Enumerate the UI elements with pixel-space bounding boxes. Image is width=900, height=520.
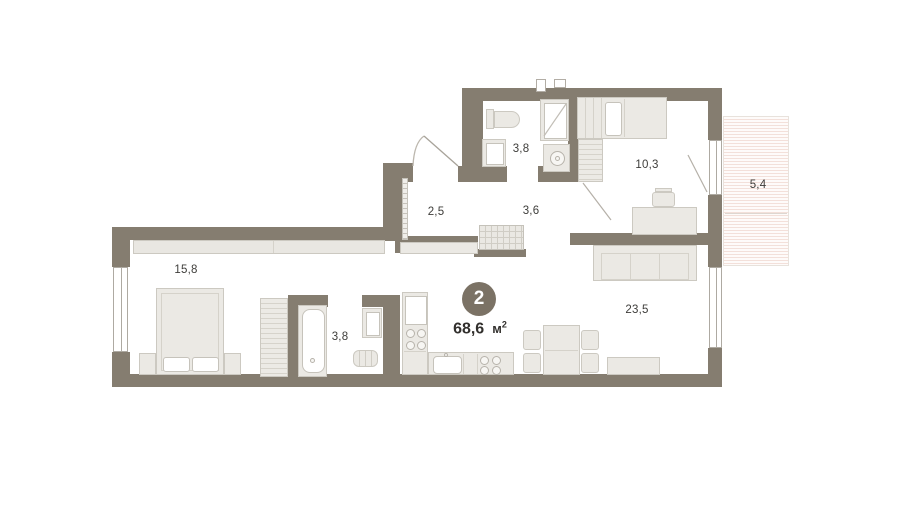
total-area: 68,6 м2 xyxy=(425,320,535,338)
room-label-living-kitchen: 23,5 xyxy=(625,304,648,316)
single-bed xyxy=(577,97,667,139)
toilet-bowl xyxy=(494,111,520,128)
window-bedroom xyxy=(113,267,128,352)
room-label-bathroom-top: 3,8 xyxy=(513,143,530,155)
room-label-corridor: 3,6 xyxy=(523,205,540,217)
laundry-unit xyxy=(353,350,378,367)
kitchen-counter xyxy=(428,352,514,375)
kitchen-counter-strip xyxy=(400,242,478,254)
dining-chair xyxy=(581,330,599,350)
room-label-bedroom: 15,8 xyxy=(174,264,197,276)
vent-shaft-mark xyxy=(536,79,546,92)
washing-machine xyxy=(543,144,570,172)
balcony-door-opening xyxy=(709,140,722,195)
room-label-bathroom-bottom: 3,8 xyxy=(332,331,349,343)
toilet-tank xyxy=(486,109,494,129)
wall-hall-top-foot xyxy=(383,163,413,182)
desk-chair xyxy=(652,192,675,207)
wall-bottom xyxy=(112,374,722,387)
wall-right-upper xyxy=(708,101,722,140)
wall-kitchen-bath xyxy=(383,295,400,377)
dining-table xyxy=(543,325,580,375)
desk xyxy=(632,207,697,235)
shelf-unit xyxy=(578,139,603,182)
bathtub xyxy=(298,305,327,377)
nightstand-right xyxy=(224,353,241,375)
dining-chair xyxy=(523,353,541,373)
wall-entry-right xyxy=(462,101,483,172)
wall-bath2-left xyxy=(288,295,298,377)
wall-bath-top-bottom-left xyxy=(458,166,507,182)
wall-left-upper xyxy=(112,240,130,267)
tv-stand xyxy=(607,357,660,375)
wall-right-middle xyxy=(708,195,722,267)
dining-chair xyxy=(581,353,599,373)
wall-bath2-top-right xyxy=(362,295,383,307)
total-area-unit: м2 xyxy=(489,321,507,336)
washbasin xyxy=(482,139,506,167)
window-living xyxy=(709,267,722,348)
shower-cabin xyxy=(540,99,569,141)
wall-cabinet-base xyxy=(474,249,526,257)
wall-bottom-section-top xyxy=(112,227,400,240)
room-label-balcony: 5,4 xyxy=(750,179,767,191)
room-count-badge: 2 xyxy=(462,282,496,316)
double-bed xyxy=(156,288,224,375)
sofa xyxy=(593,245,697,281)
total-area-value: 68,6 xyxy=(453,320,484,337)
bedroom-builtin-closet xyxy=(133,240,385,254)
room-label-hallway: 2,5 xyxy=(428,206,445,218)
floor-plan: 15,8 2,5 3,6 3,8 10,3 5,4 3,8 23,5 2 68,… xyxy=(0,0,900,520)
balcony-area xyxy=(723,116,789,266)
bedroom-wardrobe xyxy=(260,298,288,377)
bathroom-sink xyxy=(362,308,382,338)
nightstand-left xyxy=(139,353,156,375)
hallway-coat-rack xyxy=(402,178,408,240)
room-label-bedroom-small: 10,3 xyxy=(635,159,658,171)
vent-shaft-mark xyxy=(554,79,566,88)
shoe-cabinet xyxy=(479,225,524,250)
